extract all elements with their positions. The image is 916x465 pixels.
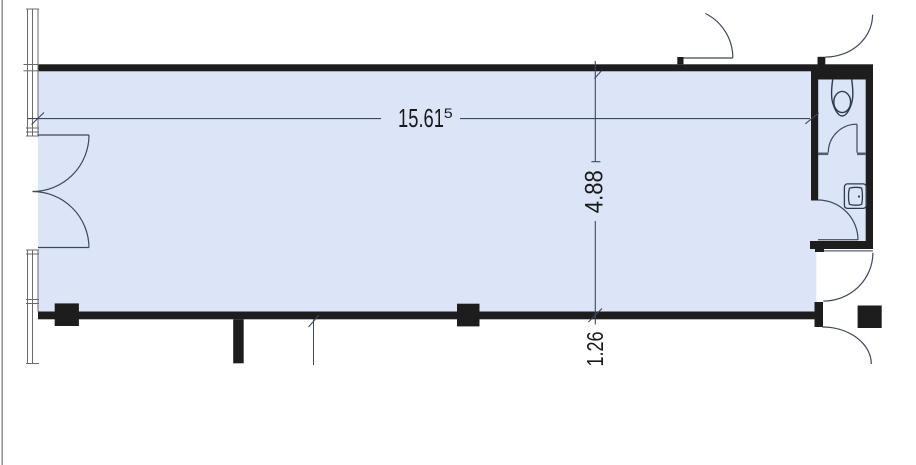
svg-text:1.26: 1.26 <box>582 332 608 367</box>
svg-text:5: 5 <box>444 105 453 121</box>
svg-text:15.61: 15.61 <box>398 103 444 133</box>
svg-text:4.88: 4.88 <box>581 170 609 213</box>
